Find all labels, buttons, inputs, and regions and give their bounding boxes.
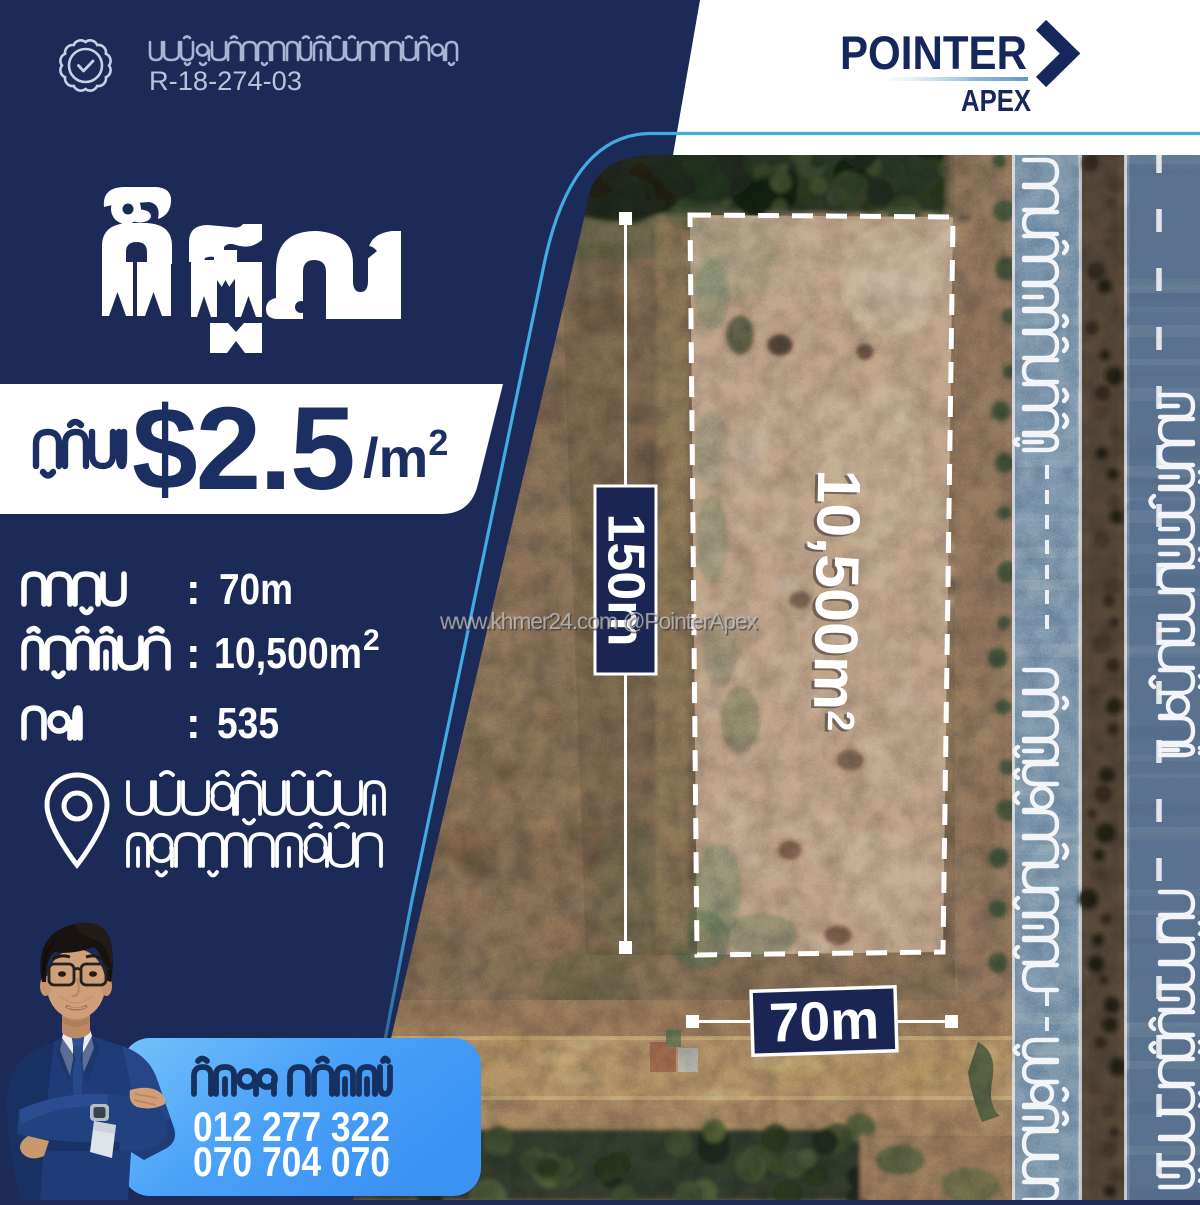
svg-text::: : bbox=[186, 565, 201, 614]
svg-text:10,500m2: 10,500m2 bbox=[801, 469, 874, 732]
svg-text:070 704 070: 070 704 070 bbox=[193, 1138, 390, 1185]
svg-text:2: 2 bbox=[363, 624, 380, 657]
svg-text:APEX: APEX bbox=[961, 83, 1031, 118]
svg-text:$2.5: $2.5 bbox=[132, 383, 354, 515]
svg-text::: : bbox=[186, 629, 201, 678]
svg-text:10,500m: 10,500m bbox=[214, 629, 362, 678]
svg-text:535: 535 bbox=[217, 699, 279, 748]
svg-text:70m: 70m bbox=[768, 988, 880, 1053]
svg-text:70m: 70m bbox=[219, 565, 293, 614]
svg-text:www.khmer24.com @PointerApex: www.khmer24.com @PointerApex bbox=[439, 608, 759, 634]
svg-text:R-18-274-03: R-18-274-03 bbox=[149, 66, 302, 96]
svg-text::: : bbox=[186, 699, 201, 748]
svg-text:POINTER: POINTER bbox=[840, 26, 1027, 79]
